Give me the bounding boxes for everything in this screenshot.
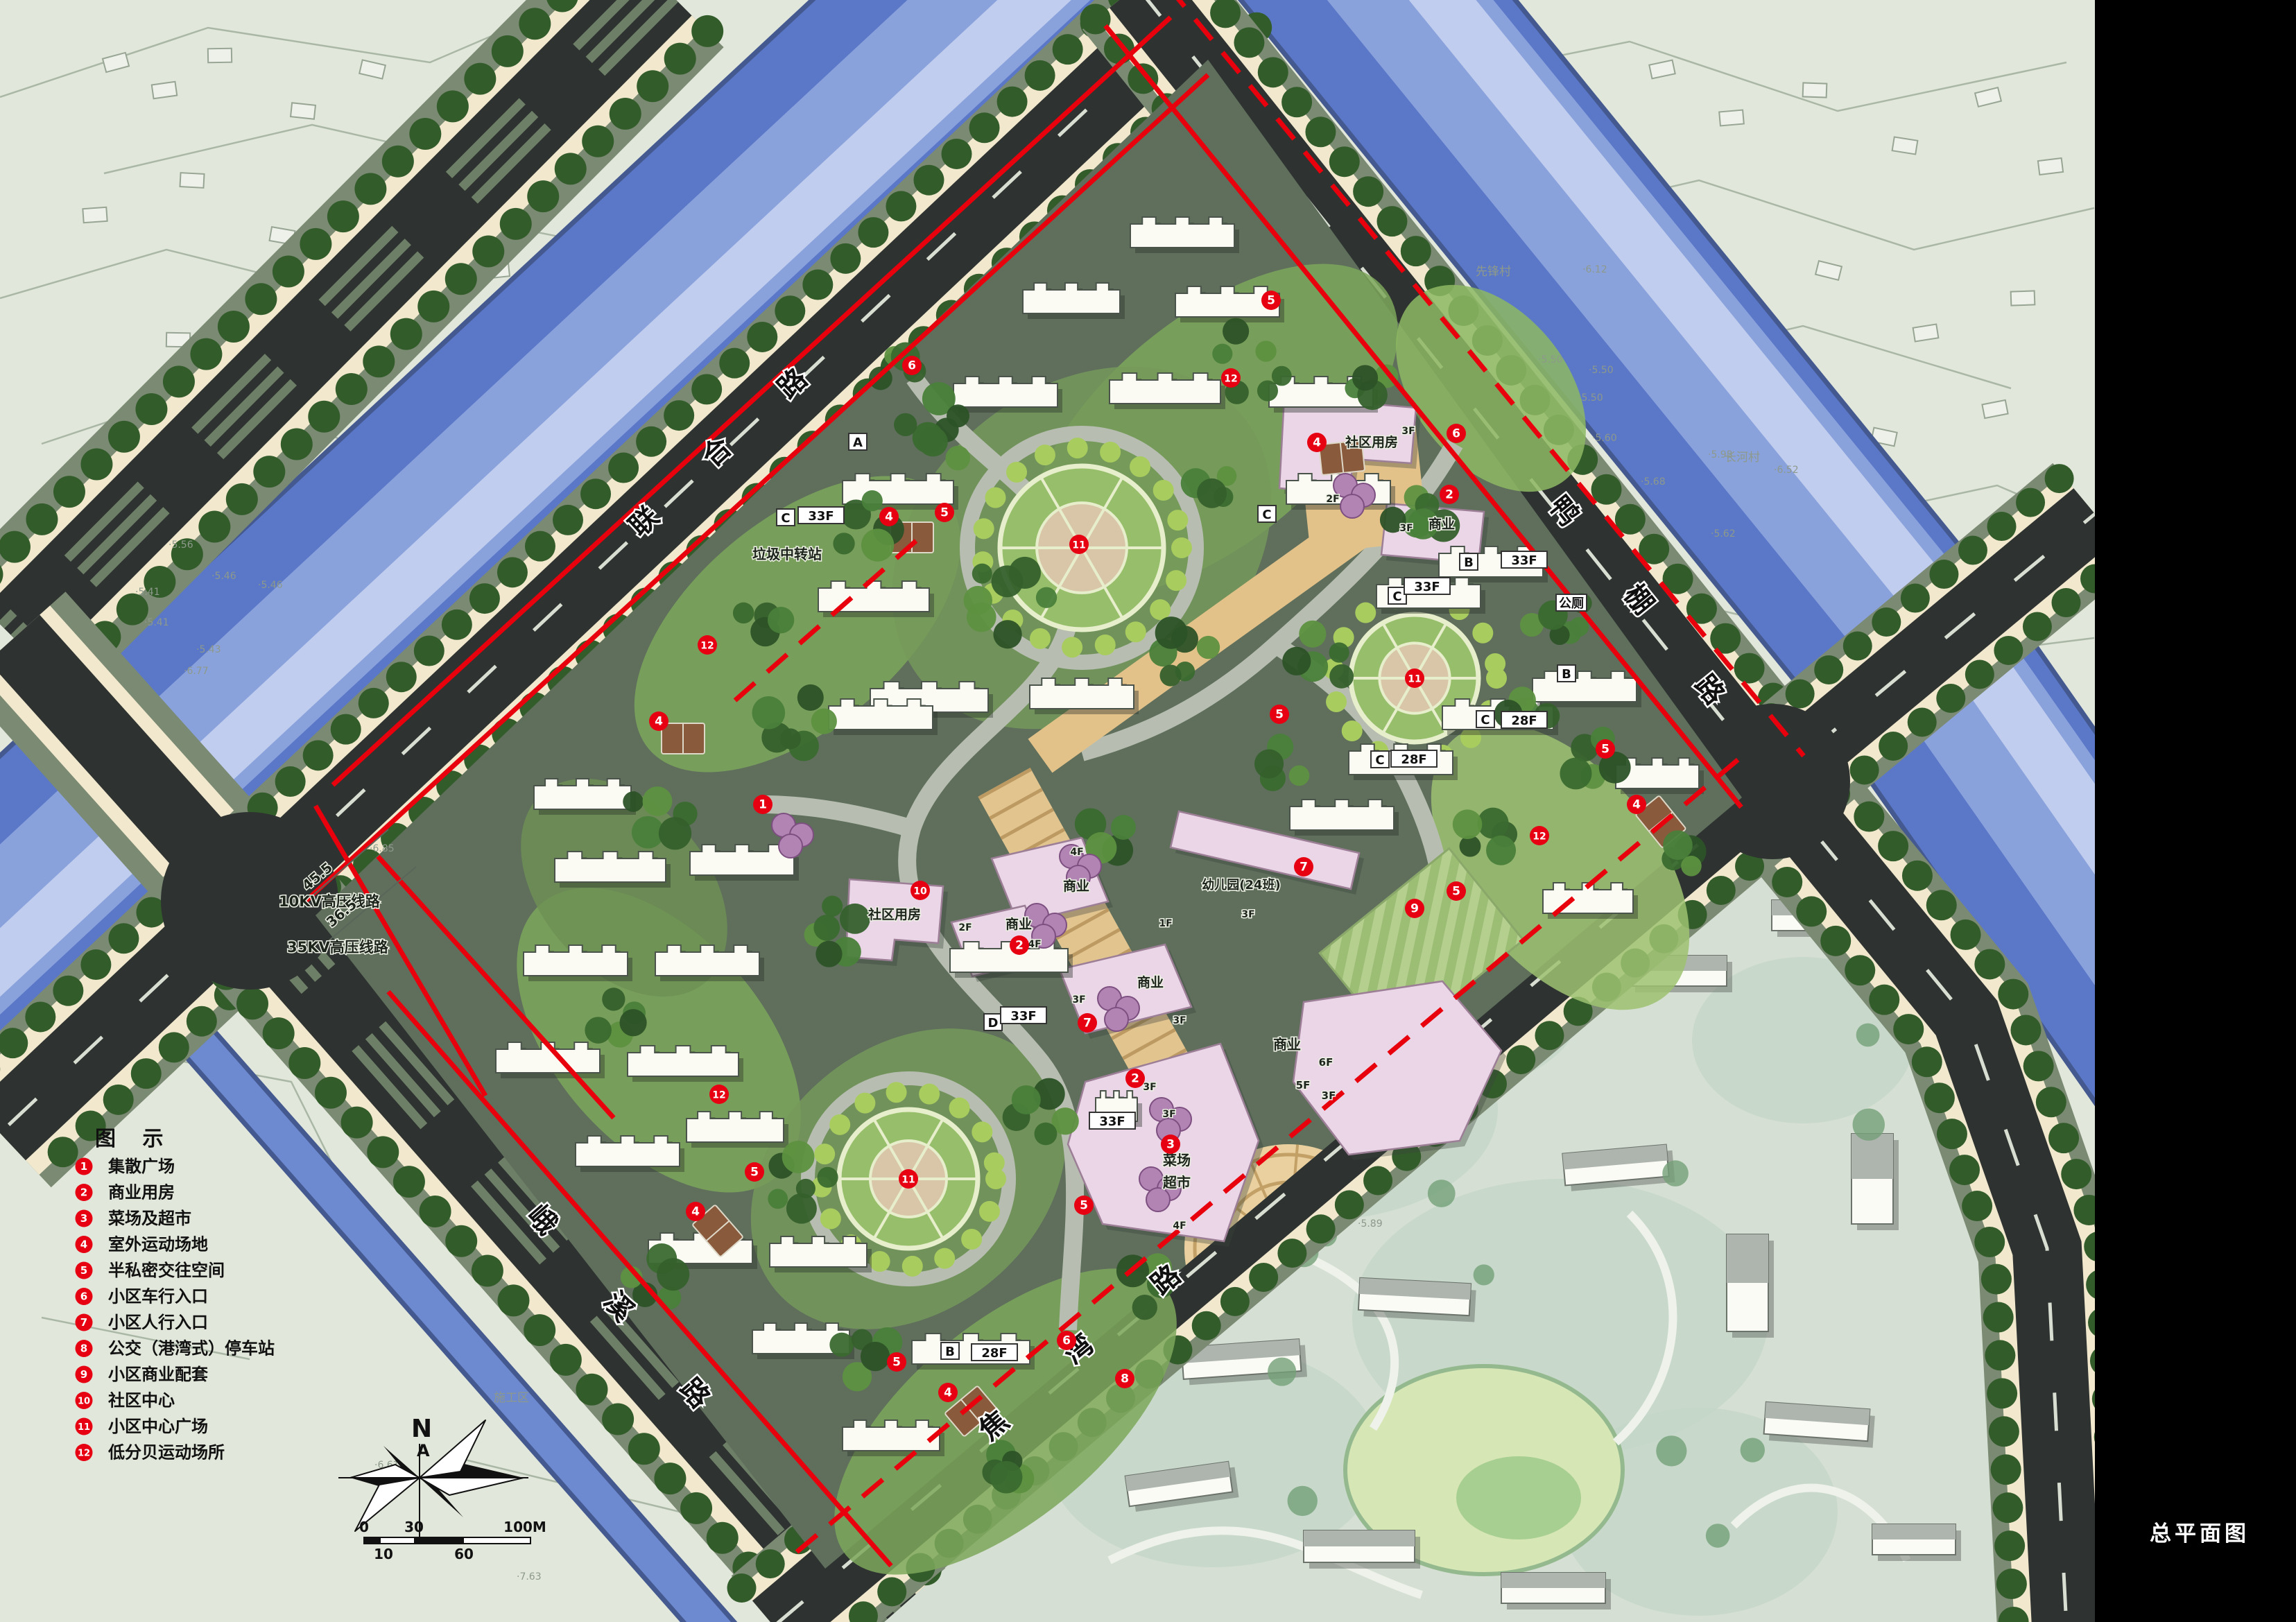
adjacent-tree (1853, 1109, 1885, 1141)
marker-number: 5 (750, 1166, 759, 1180)
site-label: 3F (1072, 994, 1085, 1006)
site-tree (1036, 587, 1057, 608)
site-label: 3F (1173, 1015, 1186, 1026)
site-tree (733, 603, 754, 623)
master-plan-sheet: 联合路鸭棚路峨溪路焦湾路垃圾中转站社区用房3F商业3F2F社区用房商业4F商业2… (0, 0, 2296, 1622)
residential-slab (628, 1046, 739, 1076)
adjacent-building-roof (1872, 1524, 1956, 1539)
building-label: C (781, 511, 790, 526)
building-label: 33F (808, 509, 834, 524)
site-tree (1132, 1295, 1157, 1320)
marker-number: 12 (1533, 831, 1546, 843)
map-marker-5: 5 (745, 1162, 764, 1182)
marker-number: 8 (1121, 1372, 1129, 1386)
scale-tick: 60 (454, 1546, 474, 1562)
legend-item-label: 集散广场 (107, 1157, 175, 1176)
marker-number: 5 (1080, 1199, 1088, 1213)
site-tree (947, 404, 969, 427)
map-marker-6: 6 (1447, 424, 1466, 443)
map-marker-4: 4 (938, 1383, 958, 1402)
site-label: 4F (1173, 1220, 1186, 1232)
building-label: A (853, 435, 863, 450)
context-house (291, 103, 316, 119)
site-label: 6F (1319, 1056, 1333, 1069)
powerline-label: 35KV高压线路 (287, 939, 389, 956)
site-label: 社区用房 (868, 906, 921, 922)
legend-item-label: 商业用房 (108, 1183, 175, 1202)
site-tree (861, 1342, 890, 1371)
site-tree (1035, 1123, 1058, 1146)
site-label: 2F (958, 922, 972, 933)
flowering-tree (1340, 494, 1364, 518)
residential-slab (818, 581, 929, 612)
site-label: 幼儿园(24班) (1202, 877, 1281, 892)
spot-elevation: ·5.46 (258, 580, 283, 591)
map-marker-6: 6 (1057, 1331, 1076, 1350)
map-marker-5: 5 (1270, 705, 1289, 724)
flowering-tree (1146, 1188, 1170, 1211)
marker-number: 11 (901, 1175, 915, 1186)
site-tree (786, 1193, 817, 1224)
map-marker-5: 5 (1261, 291, 1281, 310)
site-tree (1159, 664, 1181, 686)
compass-a-label: A (417, 1441, 430, 1460)
site-tree (972, 564, 992, 584)
context-house (1913, 324, 1939, 341)
site-tree (1272, 366, 1292, 386)
legend-item-number: 12 (78, 1449, 90, 1459)
site-tree (782, 1141, 815, 1173)
residential-slab (1023, 283, 1120, 313)
map-marker-4: 4 (1627, 795, 1646, 814)
site-tree (602, 987, 625, 1010)
marker-number: 5 (1601, 743, 1609, 757)
residential-slab (829, 699, 933, 730)
spot-elevation: ·5.62 (1711, 528, 1736, 540)
scale-tick: 100M (503, 1519, 546, 1535)
building-label: 公厕 (1559, 596, 1584, 611)
site-tree (797, 684, 824, 711)
map-marker-11: 11 (1069, 535, 1089, 554)
legend-item-label: 小区车行入口 (108, 1287, 208, 1306)
site-tree (1569, 617, 1589, 637)
site-tree (1681, 856, 1702, 877)
site-tree (840, 904, 870, 934)
marker-number: 5 (1275, 708, 1284, 722)
site-tree (1155, 616, 1188, 649)
building-label: C (1375, 753, 1384, 768)
map-marker-5: 5 (1074, 1196, 1094, 1215)
site-tree (768, 607, 794, 633)
site-tree (1254, 749, 1284, 778)
site-label: 4F (1028, 939, 1041, 950)
residential-slab (843, 1420, 940, 1451)
marker-number: 4 (1313, 436, 1321, 450)
spot-elevation: ·5.68 (1641, 476, 1666, 488)
residential-slab (534, 779, 631, 809)
legend-item-label: 小区人行入口 (108, 1313, 208, 1332)
legend-item-label: 半私密交往空间 (108, 1261, 225, 1280)
building-label: 28F (981, 1346, 1007, 1361)
title-strip: 总平面图 (2095, 0, 2296, 1622)
marker-number: 12 (700, 641, 714, 652)
site-tree (659, 817, 691, 849)
context-house (83, 207, 107, 223)
site-tree (1352, 365, 1378, 390)
marker-number: 6 (908, 359, 916, 373)
site-tree (1255, 340, 1276, 361)
marker-number: 4 (691, 1205, 700, 1219)
residential-slab (555, 852, 666, 882)
map-marker-5: 5 (935, 503, 954, 522)
residential-slab (576, 1136, 680, 1166)
spot-elevation: ·5.43 (196, 644, 221, 655)
adjacent-pond-island (1456, 1456, 1581, 1539)
site-tree (1486, 836, 1516, 865)
marker-number: 11 (1072, 540, 1085, 551)
site-tree (620, 1009, 647, 1036)
site-tree (643, 786, 673, 816)
spot-elevation: ·6.77 (184, 666, 209, 677)
map-marker-11: 11 (1405, 668, 1424, 688)
context-house (208, 49, 232, 63)
context-house (1719, 110, 1744, 126)
spot-elevation: ·5.50 (1538, 354, 1563, 365)
marker-number: 5 (892, 1356, 901, 1370)
building-label: 28F (1511, 714, 1537, 728)
marker-number: 7 (1083, 1017, 1091, 1030)
site-label: 3F (1401, 426, 1415, 437)
residential-slab (1110, 373, 1220, 404)
site-label: 商业 (1063, 878, 1089, 894)
site-tree (815, 941, 842, 967)
spot-elevation: ·5.46 (212, 571, 236, 582)
site-plan-map: 联合路鸭棚路峨溪路焦湾路垃圾中转站社区用房3F商业3F2F社区用房商业4F商业2… (0, 0, 2296, 1622)
adjacent-tree (1288, 1486, 1318, 1516)
map-marker-7: 7 (1294, 857, 1313, 877)
adjacent-tree (1268, 1357, 1296, 1386)
context-label: 施工区 (494, 1391, 529, 1405)
marker-number: 10 (913, 886, 927, 897)
building-label: C (1481, 713, 1490, 727)
legend-item-number: 4 (80, 1239, 87, 1251)
residential-slab (1030, 678, 1134, 709)
context-house (152, 82, 177, 99)
spot-elevation: ·5.41 (144, 617, 169, 628)
map-marker-5: 5 (1596, 739, 1615, 759)
site-label: 1F (1159, 918, 1172, 929)
marker-number: 6 (1452, 427, 1460, 441)
sheet-title: 总平面图 (2150, 1521, 2250, 1546)
compass-north-label: N (411, 1415, 432, 1443)
residential-slab (953, 377, 1058, 407)
site-tree (894, 413, 917, 436)
legend-item-number: 7 (80, 1316, 87, 1329)
map-marker-7: 7 (1078, 1013, 1097, 1033)
context-label: 长河村 (1725, 451, 1760, 465)
scale-bar-segment (364, 1537, 381, 1544)
building-label: 33F (1414, 580, 1440, 594)
legend-item-label: 室外运动场地 (108, 1235, 208, 1254)
building-label: 28F (1401, 752, 1426, 767)
map-marker-12: 12 (698, 635, 717, 655)
site-label: 商业 (1273, 1036, 1301, 1053)
building-label: 33F (1099, 1114, 1125, 1129)
marker-number: 5 (1452, 885, 1460, 899)
spot-elevation: ·6.52 (1774, 465, 1799, 476)
site-tree (1299, 621, 1326, 648)
site-tree (946, 446, 971, 471)
map-marker-1: 1 (753, 795, 772, 814)
legend-item-label: 社区中心 (108, 1391, 175, 1410)
site-tree (833, 533, 854, 554)
marker-number: 2 (1445, 488, 1453, 502)
map-marker-4: 4 (649, 711, 668, 731)
context-house (1803, 83, 1827, 97)
map-marker-9: 9 (1405, 899, 1424, 918)
map-marker-5: 5 (887, 1352, 906, 1372)
site-tree (1560, 757, 1591, 789)
site-tree (918, 427, 948, 457)
spot-elevation: ·6.85 (370, 843, 395, 854)
marker-number: 5 (940, 506, 949, 520)
adjacent-tree (1474, 1264, 1494, 1285)
adjacent-building-roof (1727, 1234, 1768, 1283)
site-tree (1012, 1085, 1041, 1114)
legend-item-label: 公交（港湾式）停车站 (108, 1339, 275, 1358)
scale-tick: 0 (359, 1519, 369, 1535)
context-house (180, 173, 204, 188)
residential-slab (1290, 800, 1394, 830)
site-tree (657, 1258, 689, 1291)
legend-item-number: 1 (80, 1160, 87, 1173)
map-marker-3: 3 (1161, 1134, 1180, 1154)
marker-number: 11 (1408, 674, 1421, 685)
site-tree (1197, 636, 1220, 659)
site-tree (992, 565, 1024, 597)
marker-number: 4 (655, 715, 663, 729)
adjacent-tree (1706, 1524, 1730, 1548)
marker-number: 1 (759, 798, 767, 812)
adjacent-tree (1662, 1160, 1689, 1187)
legend-item-number: 10 (78, 1397, 90, 1407)
spot-elevation: ·5.41 (135, 587, 160, 598)
site-label: 2F (1326, 494, 1339, 505)
building-label: B (945, 1345, 955, 1359)
building-label: C (1262, 508, 1271, 522)
map-marker-2: 2 (1010, 935, 1029, 955)
site-label: 3F (1241, 909, 1254, 920)
legend-item-number: 2 (80, 1187, 87, 1199)
site-tree (811, 708, 837, 734)
building-label: 33F (1511, 553, 1537, 568)
map-marker-11: 11 (899, 1169, 918, 1189)
scale-tick: 10 (374, 1546, 393, 1562)
site-tree (1453, 809, 1483, 839)
site-label: 3F (1162, 1109, 1175, 1120)
site-tree (1329, 664, 1354, 689)
site-tree (967, 603, 996, 632)
spot-elevation: ·5.56 (169, 540, 193, 551)
powerline-label: 10KV高压线路 (279, 893, 381, 910)
adjacent-building-roof (1501, 1573, 1605, 1588)
site-label: 菜场 (1162, 1152, 1191, 1168)
map-marker-12: 12 (1221, 368, 1241, 388)
legend-item-number: 11 (78, 1422, 90, 1433)
spot-elevation: ·5.50 (1589, 365, 1614, 376)
site-tree (862, 490, 883, 511)
site-tree (768, 1189, 788, 1209)
marker-number: 2 (1015, 939, 1024, 953)
residential-slab (524, 945, 628, 976)
title-strip-background (2095, 0, 2296, 1622)
map-marker-4: 4 (686, 1202, 705, 1221)
marker-number: 4 (944, 1386, 952, 1400)
marker-number: 6 (1062, 1334, 1071, 1348)
residential-slab (843, 474, 953, 504)
legend-item-number: 3 (80, 1212, 87, 1225)
building-label: 33F (1010, 1009, 1036, 1024)
building-label: B (1464, 555, 1474, 570)
site-tree (861, 528, 894, 561)
site-tree (623, 791, 644, 812)
residential-slab (1533, 671, 1637, 702)
site-label: 商业 (1428, 516, 1455, 532)
marker-number: 4 (1632, 798, 1641, 812)
site-label: 3F (1399, 523, 1413, 534)
site-tree (796, 1179, 815, 1198)
site-label: 商业 (1137, 974, 1164, 990)
adjacent-building-roof (1304, 1530, 1415, 1546)
marker-number: 2 (1131, 1072, 1139, 1086)
marker-number: 7 (1300, 861, 1308, 874)
building-label: D (988, 1016, 999, 1030)
site-tree (1289, 766, 1310, 786)
site-tree (1197, 478, 1227, 508)
legend-item-label: 小区商业配套 (108, 1365, 209, 1384)
marker-number: 3 (1166, 1138, 1175, 1152)
adjacent-tree (1741, 1438, 1765, 1462)
site-label: 5F (1296, 1079, 1311, 1092)
site-tree (752, 696, 786, 730)
site-tree (1212, 344, 1232, 364)
context-house (2011, 291, 2035, 305)
site-label: 垃圾中转站 (752, 546, 822, 562)
site-tree (822, 896, 843, 917)
map-marker-2: 2 (1440, 485, 1459, 504)
legend-item-label: 低分贝运动场所 (107, 1443, 225, 1463)
marker-number: 12 (1224, 374, 1237, 385)
map-marker-12: 12 (1530, 826, 1549, 845)
residential-slab (1130, 217, 1234, 248)
site-label: 商业 (1005, 916, 1032, 932)
site-tree (829, 1333, 854, 1357)
marker-number: 9 (1410, 902, 1419, 916)
site-tree (1111, 815, 1136, 840)
site-tree (1329, 642, 1349, 662)
map-marker-6: 6 (902, 356, 922, 375)
building-label: B (1562, 667, 1571, 682)
map-marker-10: 10 (910, 881, 930, 900)
site-tree (813, 915, 840, 941)
context-house (2038, 158, 2063, 175)
spot-elevation: ·5.60 (1592, 433, 1617, 444)
scale-bar-segment (414, 1537, 464, 1544)
context-label: 先锋村 (1476, 265, 1511, 279)
legend-item-number: 9 (80, 1368, 87, 1381)
flowering-tree (1105, 1008, 1128, 1031)
site-tree (1257, 381, 1278, 402)
site-label: 3F (1322, 1089, 1336, 1102)
residential-slab (687, 1112, 784, 1142)
marker-number: 5 (1267, 294, 1275, 308)
legend-item-number: 5 (80, 1264, 87, 1277)
legend-item-number: 6 (80, 1291, 87, 1303)
building-label: C (1392, 589, 1401, 604)
site-tree (1663, 830, 1693, 860)
marker-number: 4 (885, 510, 893, 524)
site-tree (780, 728, 801, 749)
site-tree (1223, 318, 1249, 345)
site-tree (1478, 808, 1509, 839)
site-tree (585, 1017, 612, 1044)
marker-number: 12 (712, 1090, 725, 1101)
spot-elevation: ·5.50 (1578, 392, 1603, 404)
map-marker-12: 12 (709, 1085, 729, 1104)
adjacent-building-roof (1852, 1134, 1893, 1179)
spot-elevation: ·5.89 (1358, 1218, 1383, 1230)
residential-slab (655, 945, 759, 976)
spot-elevation: ·6.12 (1582, 264, 1607, 275)
legend-item-label: 菜场及超市 (107, 1209, 191, 1228)
site-tree (993, 620, 1021, 648)
adjacent-tree (1428, 1180, 1456, 1207)
residential-slab (770, 1236, 867, 1267)
site-label: 社区用房 (1345, 434, 1398, 450)
scale-tick: 30 (404, 1519, 424, 1535)
legend-item-label: 小区中心广场 (108, 1417, 208, 1436)
map-marker-4: 4 (1307, 433, 1327, 452)
adjacent-tree (1656, 1435, 1686, 1466)
site-label: 4F (1070, 847, 1083, 858)
site-label: 超市 (1162, 1174, 1191, 1191)
residential-slab (690, 845, 794, 875)
map-marker-5: 5 (1447, 881, 1466, 901)
site-tree (990, 1461, 1023, 1494)
site-tree (1282, 647, 1311, 675)
site-label: 3F (1143, 1082, 1156, 1093)
legend-title: 图 示 (95, 1127, 173, 1151)
adjacent-tree (1856, 1024, 1880, 1047)
flowering-tree (779, 834, 802, 858)
site-tree (818, 1167, 838, 1188)
map-marker-2: 2 (1125, 1069, 1145, 1088)
legend-item-number: 8 (80, 1343, 87, 1355)
context-house (1892, 137, 1918, 154)
map-marker-8: 8 (1115, 1369, 1134, 1388)
map-marker-4: 4 (879, 507, 899, 526)
spot-elevation: ·7.63 (517, 1571, 542, 1582)
